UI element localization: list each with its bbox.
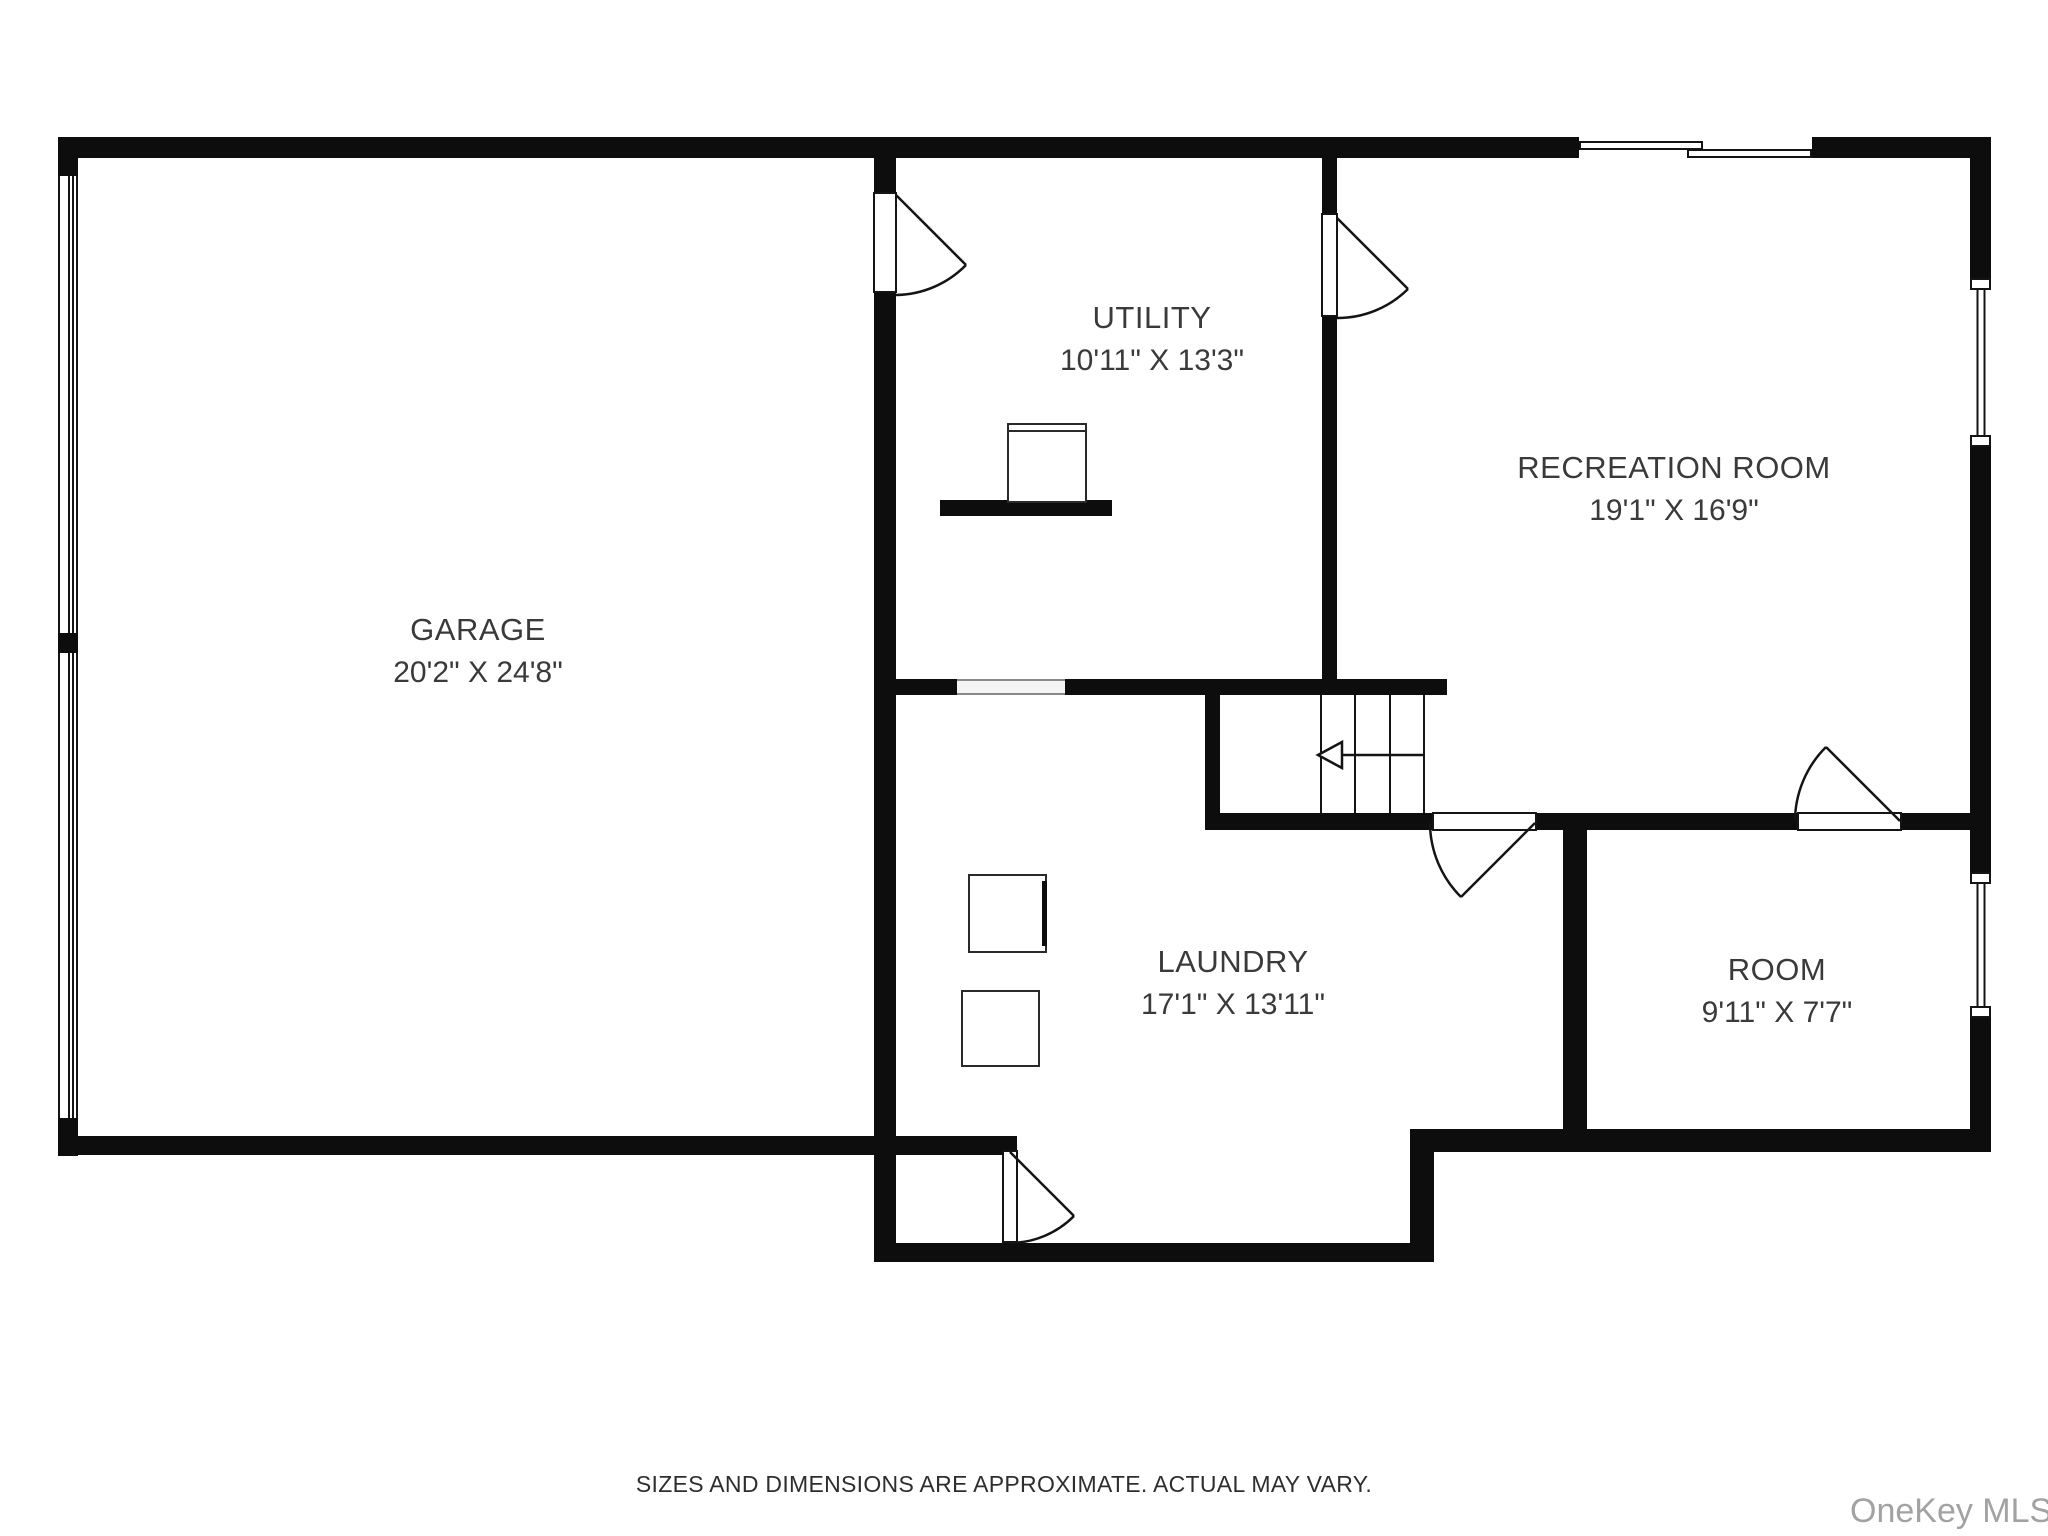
stair-tread	[1320, 695, 1322, 813]
laundry-label: LAUNDRY 17'1" X 13'11"	[1141, 942, 1325, 1025]
room-name: ROOM	[1702, 950, 1853, 990]
door-laundry-sw-leaf	[1002, 1150, 1018, 1243]
wall-garage-right-lower	[874, 293, 896, 1262]
garage-window-upper	[58, 176, 78, 633]
stair-tread	[1423, 695, 1425, 813]
wall-utility-rec-upper	[1322, 155, 1337, 213]
wall-left-mullion	[58, 633, 78, 653]
utility-appliance	[1007, 423, 1087, 503]
wall-top-left-segment	[58, 137, 1579, 158]
wall-laundry-room-divider	[1563, 830, 1587, 1152]
wall-laundry-bottom	[874, 1243, 1434, 1262]
room-name: GARAGE	[393, 610, 563, 650]
wall-right-seg1	[1970, 158, 1991, 278]
wall-stair-south	[1205, 813, 1432, 830]
wall-rec-bottom-a	[1537, 813, 1587, 830]
utility-label: UTILITY 10'11" X 13'3"	[1060, 298, 1244, 381]
wall-stair-west	[1205, 693, 1220, 830]
garage-window-lower	[58, 653, 78, 1118]
recreation-window-top-sash-left	[1579, 141, 1703, 150]
door-stairs-laundry-swing	[1430, 823, 1535, 897]
door-utility-rec-leaf	[1321, 213, 1338, 317]
wall-utility-rec-lower	[1322, 317, 1337, 695]
recreation-window-right	[1970, 278, 1991, 447]
onekey-mls-watermark: OneKey MLS	[1850, 1492, 2048, 1531]
door-recreation-swing	[1795, 747, 1900, 821]
wall-right-seg3	[1970, 830, 1991, 872]
room-window-right	[1970, 872, 1991, 1018]
room-dimensions: 10'11" X 13'3"	[1060, 341, 1244, 381]
laundry-dryer	[961, 990, 1040, 1067]
garage-label: GARAGE 20'2" X 24'8"	[393, 610, 563, 693]
room-dimensions: 17'1" X 13'11"	[1141, 985, 1325, 1025]
room-dimensions: 19'1" X 16'9"	[1517, 491, 1831, 531]
pass-through-opening	[957, 679, 1065, 695]
room-name: UTILITY	[1060, 298, 1244, 338]
room-name: LAUNDRY	[1141, 942, 1325, 982]
door-laundry-sw-swing	[1010, 1152, 1074, 1243]
disclaimer-text: SIZES AND DIMENSIONS ARE APPROXIMATE. AC…	[636, 1471, 1372, 1498]
wall-rec-bottom-c	[1902, 813, 1991, 830]
recreation-room-label: RECREATION ROOM 19'1" X 16'9"	[1517, 448, 1831, 531]
wall-left-top-block	[58, 137, 78, 176]
stair-tread	[1354, 695, 1356, 813]
door-garage-utility-leaf	[873, 192, 897, 293]
stairs-down-arrow-icon	[1318, 742, 1423, 768]
door-recreation-threshold	[1797, 812, 1902, 831]
wall-middle-west	[896, 679, 957, 695]
door-utility-rec-swing	[1337, 218, 1408, 318]
room-name: RECREATION ROOM	[1517, 448, 1831, 488]
door-stairs-laundry-threshold	[1432, 812, 1537, 831]
wall-room-bottom	[1410, 1129, 1991, 1152]
wall-rec-bottom-b	[1587, 813, 1797, 830]
room-dimensions: 20'2" X 24'8"	[393, 653, 563, 693]
wall-garage-right-upper	[874, 137, 896, 192]
door-swing-overlay	[0, 0, 2048, 1536]
wall-middle-east	[1065, 679, 1447, 695]
recreation-window-top-sash-right	[1687, 149, 1812, 158]
laundry-washer	[968, 874, 1047, 953]
door-garage-utility-swing	[896, 195, 966, 295]
room-label: ROOM 9'11" X 7'7"	[1702, 950, 1853, 1033]
stair-tread	[1389, 695, 1391, 813]
floor-plan: GARAGE 20'2" X 24'8" UTILITY 10'11" X 13…	[0, 0, 2048, 1536]
room-dimensions: 9'11" X 7'7"	[1702, 993, 1853, 1033]
wall-right-seg2	[1970, 447, 1991, 813]
wall-top-right-segment	[1812, 137, 1991, 158]
